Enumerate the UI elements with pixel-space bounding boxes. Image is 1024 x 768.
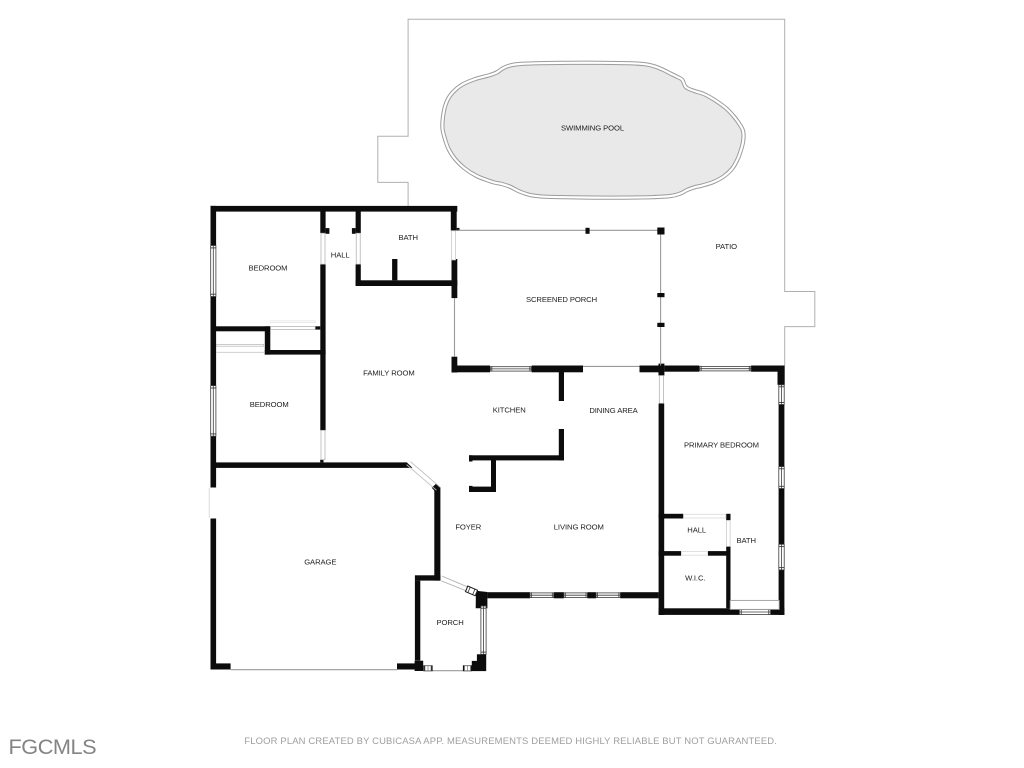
svg-text:FGCMLS: FGCMLS <box>9 734 97 759</box>
svg-text:FAMILY ROOM: FAMILY ROOM <box>363 368 414 377</box>
svg-text:KITCHEN: KITCHEN <box>493 406 526 415</box>
svg-text:SWIMMING POOL: SWIMMING POOL <box>561 124 624 133</box>
svg-text:SCREENED PORCH: SCREENED PORCH <box>526 295 597 304</box>
svg-text:FLOOR PLAN CREATED BY CUBICASA: FLOOR PLAN CREATED BY CUBICASA APP. MEAS… <box>244 736 777 747</box>
svg-text:LIVING ROOM: LIVING ROOM <box>554 522 604 531</box>
svg-text:HALL: HALL <box>331 250 350 259</box>
svg-text:BATH: BATH <box>398 233 418 242</box>
svg-text:PORCH: PORCH <box>436 618 463 627</box>
svg-text:BEDROOM: BEDROOM <box>250 400 289 409</box>
svg-text:FOYER: FOYER <box>455 522 481 531</box>
svg-text:DINING AREA: DINING AREA <box>589 406 638 415</box>
svg-text:PATIO: PATIO <box>716 242 738 251</box>
svg-text:W.I.C.: W.I.C. <box>685 574 705 583</box>
svg-text:BEDROOM: BEDROOM <box>249 264 288 273</box>
svg-text:PRIMARY BEDROOM: PRIMARY BEDROOM <box>684 440 759 449</box>
svg-text:GARAGE: GARAGE <box>304 557 336 566</box>
svg-text:BATH: BATH <box>736 536 756 545</box>
svg-text:HALL: HALL <box>687 525 706 534</box>
